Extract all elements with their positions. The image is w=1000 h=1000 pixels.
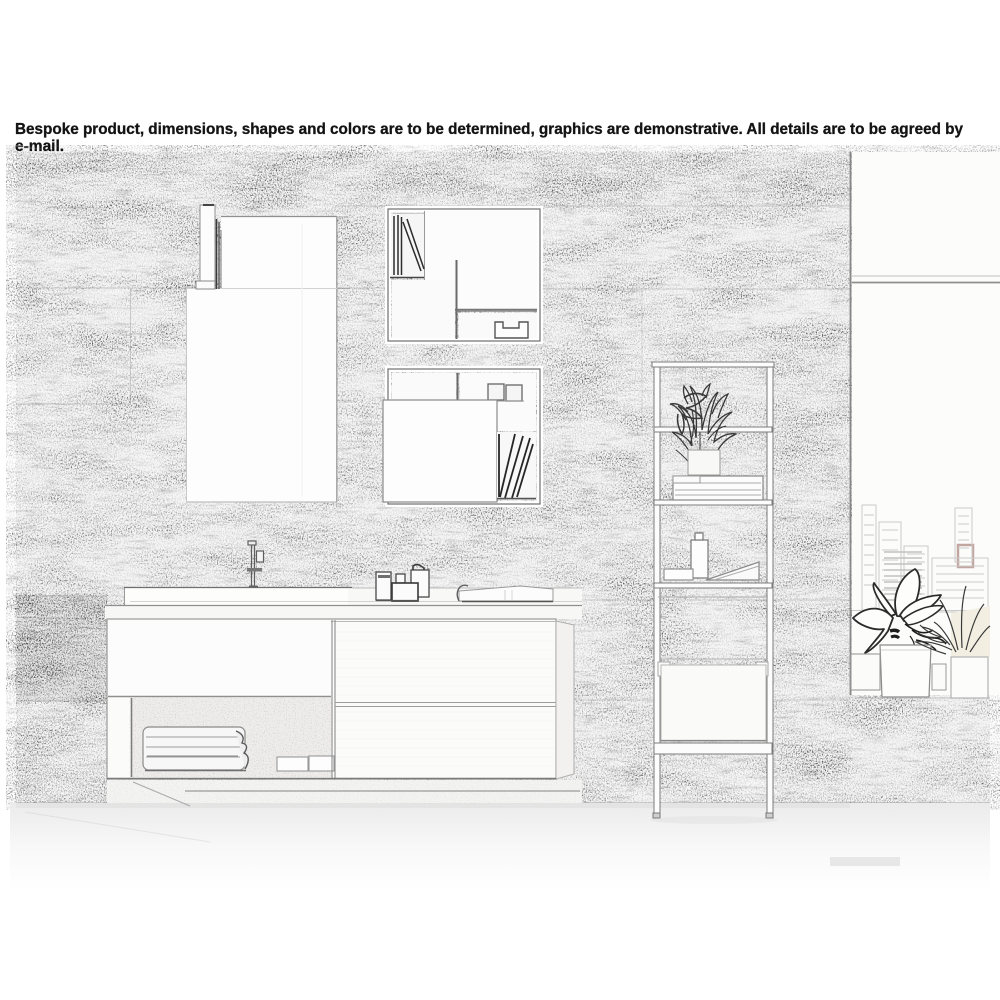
svg-text:Bespoke product, dimensions, s: Bespoke product, dimensions, shapes and …	[15, 121, 963, 138]
